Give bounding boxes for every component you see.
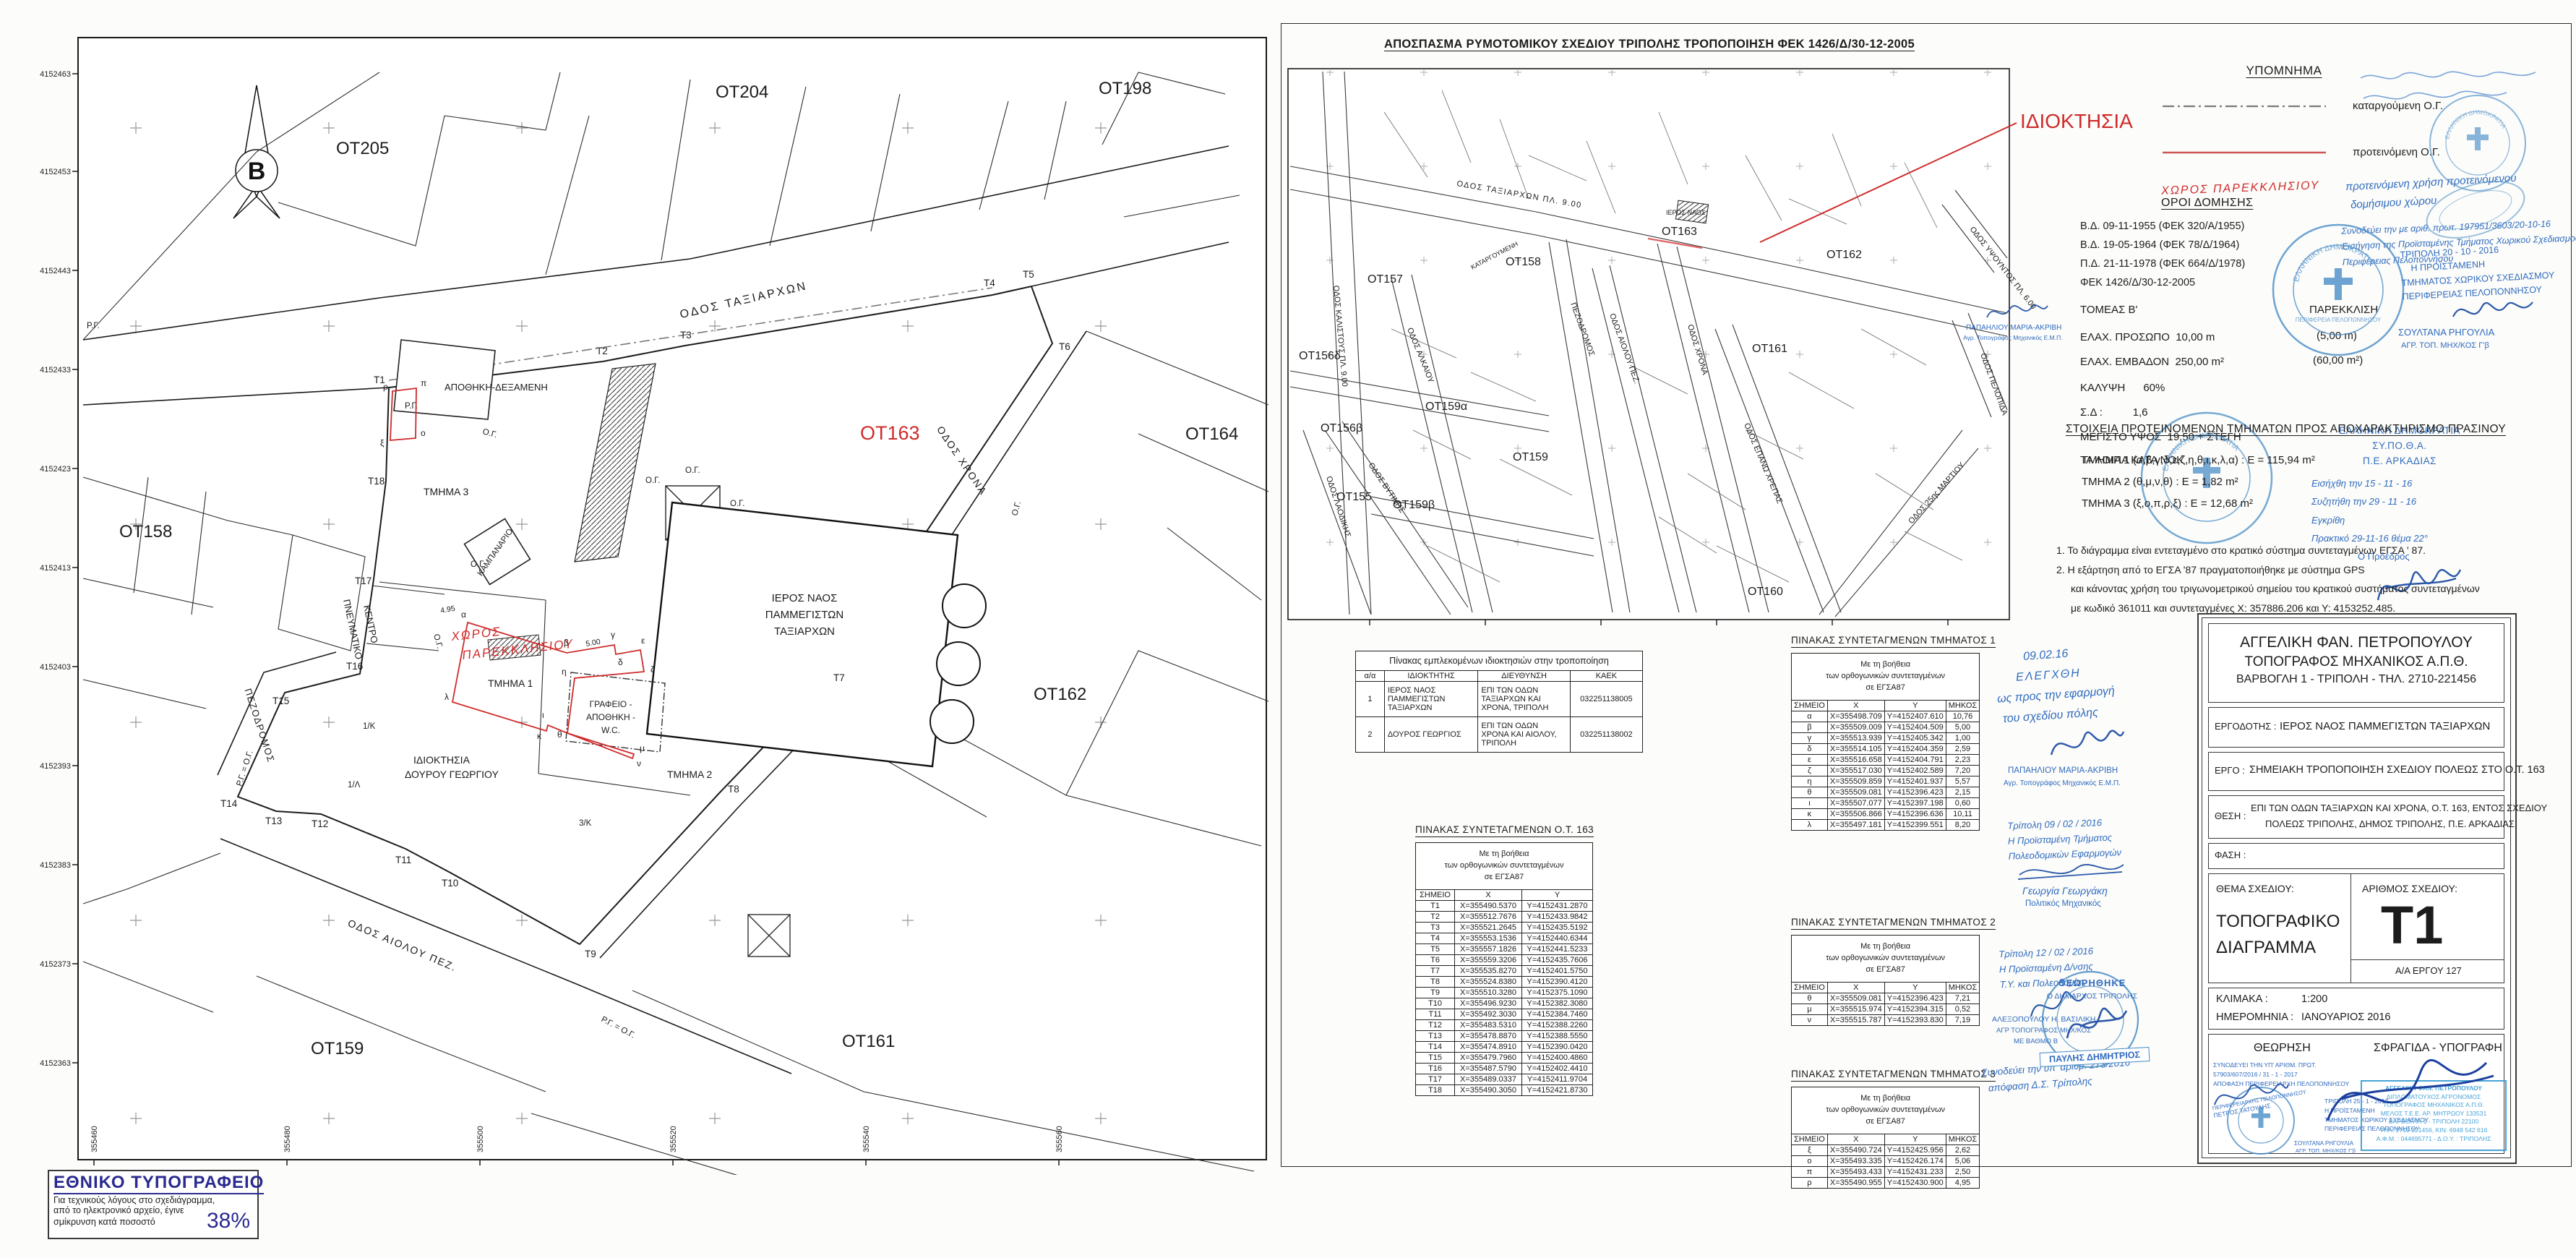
table-row: Τ12 Χ=355483.5310 Υ=4152388.2260: [1416, 1019, 1593, 1030]
tb-phase-row: ΦΑΣΗ :: [2208, 843, 2504, 869]
svg-text:4152383: 4152383: [40, 861, 71, 870]
cell-y: Υ=4152375.1090: [1521, 987, 1592, 998]
date-label: ΗΜΕΡΟΜΗΝΙΑ :: [2216, 1011, 2293, 1023]
cell-x: Χ=355509.081: [1827, 993, 1884, 1004]
svg-text:4152363: 4152363: [40, 1059, 71, 1068]
cell-y: Υ=4152405.342: [1884, 732, 1946, 743]
svg-text:4152403: 4152403: [40, 663, 71, 672]
table-row: Τ4 Χ=355553.1536 Υ=4152440.6344: [1416, 933, 1593, 943]
cell-point: α: [1792, 711, 1828, 722]
cell-point: ζ: [1792, 765, 1828, 776]
svg-text:Τ3: Τ3: [680, 330, 692, 341]
cell-x: Χ=355490.5370: [1455, 900, 1522, 911]
region-stamp-title: ΑΓΡ. ΤΟΠ. ΜΗΧ/ΚΟΣ Γ'β: [2401, 341, 2489, 350]
legend-abolished-line: [2161, 103, 2327, 110]
cell-y: Υ=4152390.4120: [1521, 976, 1592, 987]
cell-point: β: [1792, 722, 1828, 732]
table-row: Τ18 Χ=355490.3050 Υ=4152421.8730: [1416, 1084, 1593, 1095]
svg-text:Τ18: Τ18: [368, 476, 385, 487]
cell-y: Υ=4152435.7606: [1521, 954, 1592, 965]
svg-text:π: π: [421, 378, 426, 388]
review-title2: ΑΓΡ. ΤΟΠ. ΜΗΧ/ΚΟΣ Γ'β: [2296, 1147, 2356, 1154]
cell-y: Υ=4152396.423: [1884, 787, 1946, 797]
cell-address: ΕΠΙ ΤΩΝ ΟΔΩΝ ΤΑΞΙΑΡΧΩΝ ΚΑΙ ΧΡΟΝΑ, ΤΡΙΠΟΛ…: [1478, 682, 1570, 717]
cell-len: 10,76: [1946, 711, 1979, 722]
cell-x: Χ=355496.9230: [1455, 998, 1522, 1009]
svg-text:Τ10: Τ10: [442, 878, 458, 889]
cell-x: Χ=355474.8910: [1455, 1041, 1522, 1052]
table-row: γ Χ=355513.939 Υ=4152405.342 1,00: [1792, 732, 1980, 743]
svg-text:Ο.Γ.: Ο.Γ.: [645, 476, 660, 485]
cell-point: κ: [1792, 808, 1828, 819]
svg-text:α: α: [461, 609, 466, 620]
col-header: ΣΗΜΕΙΟ: [1792, 982, 1828, 993]
cell-len: 7,21: [1946, 993, 1979, 1004]
sypotha-rows: Εισήχθη την 15 - 11 - 16 Συζητήθη την 29…: [2311, 474, 2428, 547]
svg-text:ΟΤ204: ΟΤ204: [716, 82, 768, 102]
cell-point: ρ: [1792, 1177, 1828, 1188]
review-header: ΘΕΩΡΗΣΗ: [2254, 1042, 2311, 1055]
engineer-name: ΑΓΓΕΛΙΚΗ ΦΑΝ. ΠΕΤΡΟΠΟΥΛΟΥ: [2209, 634, 2504, 651]
legend-title: ΥΠΟΜΝΗΜΑ: [2215, 64, 2353, 78]
cell-len: 1,00: [1946, 732, 1979, 743]
svg-text:4152423: 4152423: [40, 465, 71, 474]
svg-text:ΟΤ157: ΟΤ157: [1368, 273, 1403, 286]
cell-point: μ: [1792, 1004, 1828, 1014]
table-row: Τ5 Χ=355557.1826 Υ=4152441.5233: [1416, 943, 1593, 954]
cell-point: Τ9: [1416, 987, 1455, 998]
legend-proposed-line: [2161, 149, 2327, 156]
cell-x: Χ=355515.787: [1827, 1014, 1884, 1025]
svg-text:ΟΤ198: ΟΤ198: [1099, 79, 1151, 98]
svg-text:ΟΤ159α: ΟΤ159α: [1425, 401, 1467, 413]
ownership-label: ΙΔΙΟΚΤΗΣΙΑ: [2020, 110, 2133, 132]
main-map: 4152463 4152453 4152443 4152433 4152423 …: [40, 29, 1272, 1175]
review-name2: ΣΟΥΛΤΑΝΑ ΡΗΓΟΥΛΙΑ: [2294, 1140, 2353, 1147]
svg-text:Τ4: Τ4: [984, 278, 995, 288]
engineer-address: ΒΑΡΒΟΓΛΗ 1 - ΤΡΙΠΟΛΗ - ΤΗΛ. 2710-221456: [2209, 673, 2504, 686]
area-label: ΕΛΑΧ. ΕΜΒΑΔΟΝ: [2080, 356, 2169, 368]
cell-point: ν: [1792, 1014, 1828, 1025]
table-row: η Χ=355509.859 Υ=4152401.937 5,57: [1792, 776, 1980, 787]
svg-text:4152393: 4152393: [40, 762, 71, 771]
svg-text:4152413: 4152413: [40, 564, 71, 573]
col-header: ΣΗΜΕΙΟ: [1416, 889, 1455, 900]
svg-text:ΟΤ156δ: ΟΤ156δ: [1299, 350, 1341, 362]
svg-text:ΟΤ158: ΟΤ158: [119, 522, 172, 542]
cell-x: Χ=355492.3030: [1455, 1009, 1522, 1019]
table-row: ξ Χ=355490.724 Υ=4152425.956 2,62: [1792, 1144, 1980, 1155]
signature-scribble: [2210, 1077, 2290, 1113]
svg-text:ΤΜΗΜΑ 3: ΤΜΗΜΑ 3: [424, 486, 468, 497]
cell-y: Υ=4152396.423: [1884, 993, 1946, 1004]
cell-point: Τ2: [1416, 911, 1455, 922]
theme-line1: ΤΟΠΟΓΡΑΦΙΚΟ: [2216, 912, 2340, 932]
cell-len: 7,20: [1946, 765, 1979, 776]
cell-y: Υ=4152431.2870: [1521, 900, 1592, 911]
cell-x: Χ=355479.7960: [1455, 1052, 1522, 1063]
checker-name: ΠΑΠΑΗΛΙΟΥ ΜΑΡΙΑ-ΑΚΡΙΒΗ: [2008, 766, 2118, 775]
svg-text:1/Κ: 1/Κ: [363, 722, 376, 731]
cell-x: Χ=355483.5310: [1455, 1019, 1522, 1030]
decree-line: Π.Δ. 21-11-1978 (ΦΕΚ 664/Δ/1978): [2080, 254, 2245, 273]
approval-1-title: Πολιτικός Μηχανικός: [2025, 899, 2101, 908]
table-row: Τ17 Χ=355489.0337 Υ=4152411.9704: [1416, 1074, 1593, 1084]
cell-len: 5,00: [1946, 722, 1979, 732]
cell-x: Χ=355478.8870: [1455, 1030, 1522, 1041]
cell-y: Υ=4152397.198: [1884, 797, 1946, 808]
crossed-structure-2: [748, 915, 790, 957]
svg-text:ΟΤ161: ΟΤ161: [1752, 343, 1787, 355]
col-header: ΔΙΕΥΘΥΝΣΗ: [1478, 671, 1570, 682]
national-print-box: ΕΘΝΙΚΟ ΤΥΠΟΓΡΑΦΕΙΟ Για τεχνικούς λόγους …: [48, 1170, 259, 1239]
cell-point: Τ11: [1416, 1009, 1455, 1019]
owners-title: Πίνακας εμπλεκομένων ιδιοκτησιών στην τρ…: [1356, 651, 1643, 671]
sd-label: Σ.Δ :: [2080, 406, 2103, 419]
table-row: ο Χ=355493.335 Υ=4152426.174 5,06: [1792, 1155, 1980, 1166]
table-row: ε Χ=355516.658 Υ=4152404.791 2,23: [1792, 754, 1980, 765]
cell-point: ε: [1792, 754, 1828, 765]
table-row: Τ3 Χ=355521.2645 Υ=4152435.5192: [1416, 922, 1593, 933]
svg-text:355500: 355500: [476, 1126, 485, 1152]
cell-x: Χ=355509.009: [1827, 722, 1884, 732]
col-header: ΙΔΙΟΚΤΗΤΗΣ: [1384, 671, 1478, 682]
cell-y: Υ=4152435.5192: [1521, 922, 1592, 933]
cell-point: Τ17: [1416, 1074, 1455, 1084]
svg-text:ΟΤ164: ΟΤ164: [1185, 424, 1238, 444]
col-header: α/α: [1356, 671, 1385, 682]
signature-scribble: [2450, 295, 2537, 328]
svg-text:η: η: [562, 667, 567, 677]
cell-x: Χ=355512.7676: [1455, 911, 1522, 922]
cell-owner: ΔΟΥΡΟΣ ΓΕΩΡΓΙΟΣ: [1384, 717, 1478, 753]
svg-text:Τ16: Τ16: [346, 661, 363, 672]
svg-text:ΟΤ160: ΟΤ160: [1748, 586, 1783, 598]
approval-1-name: Γεωργία Γεωργάκη: [2022, 885, 2108, 897]
decree-line: Β.Δ. 09-11-1955 (ΦΕΚ 320/Α/1955): [2080, 217, 2245, 236]
cell-y: Υ=4152390.0420: [1521, 1041, 1592, 1052]
svg-text:Τ2: Τ2: [596, 346, 608, 356]
cell-y: Υ=4152404.359: [1884, 743, 1946, 754]
theme-label: ΘΕΜΑ ΣΧΕΔΙΟΥ:: [2216, 883, 2294, 894]
svg-text:ΟΤ162: ΟΤ162: [1826, 249, 1862, 261]
col-header: Χ: [1827, 700, 1884, 711]
cell-y: Υ=4152402.589: [1884, 765, 1946, 776]
svg-text:ΟΤ158: ΟΤ158: [1506, 256, 1541, 268]
table-row: Τ13 Χ=355478.8870 Υ=4152388.5550: [1416, 1030, 1593, 1041]
cell-point: Τ10: [1416, 998, 1455, 1009]
cell-len: 2,15: [1946, 787, 1979, 797]
svg-text:ο: ο: [421, 428, 426, 438]
svg-text:Τ5: Τ5: [1023, 269, 1034, 280]
table-row: Τ10 Χ=355496.9230 Υ=4152382.3080: [1416, 998, 1593, 1009]
decree-line: Β.Δ. 19-05-1964 (ΦΕΚ 78/Δ/1964): [2080, 236, 2245, 254]
section-item: ΤΜΗΜΑ 1 (α,β,γ,δ,ε,ζ,η,θ,ι,κ,λ,α) : Ε = …: [2082, 450, 2315, 471]
table-row: Τ9 Χ=355510.3280 Υ=4152375.1090: [1416, 987, 1593, 998]
national-print-l1: Για τεχνικούς λόγους στο σχεδιάγραμμα,: [53, 1195, 253, 1205]
cell-point: Τ12: [1416, 1019, 1455, 1030]
svg-text:355480: 355480: [283, 1126, 292, 1152]
cell-len: 8,20: [1946, 819, 1979, 830]
svg-text:ΓΡΑΦΕΙΟ -: ΓΡΑΦΕΙΟ -: [590, 699, 632, 709]
cell-owner: ΙΕΡΟΣ ΝΑΟΣ ΠΑΜΜΕΓΙΣΤΩΝ ΤΑΞΙΑΡΧΩΝ: [1384, 682, 1478, 717]
table-row: Τ11 Χ=355492.3030 Υ=4152384.7460: [1416, 1009, 1593, 1019]
col-header: ΜΗΚΟΣ: [1946, 1134, 1979, 1144]
svg-text:4152373: 4152373: [40, 960, 71, 969]
svg-text:1/Λ: 1/Λ: [348, 781, 361, 790]
area-value: 250,00 m²: [2175, 356, 2224, 368]
corner-handwriting-scribble: [2358, 67, 2538, 117]
cell-len: 2,59: [1946, 743, 1979, 754]
svg-text:ΙΕΡΟΣ ΝΑΟΣ: ΙΕΡΟΣ ΝΑΟΣ: [772, 592, 838, 604]
cell-y: Υ=4152384.7460: [1521, 1009, 1592, 1019]
cell-x: Χ=355514.105: [1827, 743, 1884, 754]
signature-scribble: [2017, 859, 2125, 885]
table-title: ΠΙΝΑΚΑΣ ΣΥΝΤΕΤΑΓΜΕΝΩΝ Ο.Τ. 163: [1415, 824, 1593, 835]
col-header: ΣΗΜΕΙΟ: [1792, 700, 1828, 711]
cell-x: Χ=355490.724: [1827, 1144, 1884, 1155]
sections-title: ΣΤΟΙΧΕΙΑ ΠΡΟΤΕΙΝΟΜΕΝΩΝ ΤΜΗΜΑΤΩΝ ΠΡΟΣ ΑΠΟ…: [2066, 423, 2506, 436]
table-row: Τ16 Χ=355487.5790 Υ=4152402.4410: [1416, 1063, 1593, 1074]
national-print-percent: 38%: [207, 1209, 250, 1233]
cell-x: Χ=355535.8270: [1455, 965, 1522, 976]
table-row: Τ8 Χ=355524.8380 Υ=4152390.4120: [1416, 976, 1593, 987]
cell-point: Τ8: [1416, 976, 1455, 987]
section-item: ΤΜΗΜΑ 3 (ξ,ο,π,ρ,ξ) : Ε = 12,68 m²: [2082, 493, 2315, 515]
stamp-line: Συζητήθη την 29 - 11 - 16: [2311, 492, 2428, 510]
table-row: β Χ=355509.009 Υ=4152404.509 5,00: [1792, 722, 1980, 732]
cell-y: Υ=4152404.791: [1884, 754, 1946, 765]
svg-text:4152443: 4152443: [40, 267, 71, 275]
national-print-l3: σμίκρυνση κατά ποσοστό: [53, 1217, 155, 1227]
cell-x: Χ=355490.3050: [1455, 1084, 1522, 1095]
cell-y: Υ=4152400.4860: [1521, 1052, 1592, 1063]
table-row: δ Χ=355514.105 Υ=4152404.359 2,59: [1792, 743, 1980, 754]
cell-y: Υ=4152401.937: [1884, 776, 1946, 787]
cell-kaek: 032251138002: [1570, 717, 1642, 753]
cell-x: Χ=355513.939: [1827, 732, 1884, 743]
phase-label: ΦΑΣΗ :: [2215, 850, 2246, 860]
employer-value: ΙΕΡΟΣ ΝΑΟΣ ΠΑΜΜΕΓΙΣΤΩΝ ΤΑΞΙΑΡΧΩΝ: [2280, 720, 2490, 732]
cell-kaek: 032251138005: [1570, 682, 1642, 717]
svg-text:Τ12: Τ12: [312, 818, 328, 829]
svg-text:Ρ.Γ.: Ρ.Γ.: [405, 402, 418, 411]
table-row: 1 ΙΕΡΟΣ ΝΑΟΣ ΠΑΜΜΕΓΙΣΤΩΝ ΤΑΞΙΑΡΧΩΝ ΕΠΙ Τ…: [1356, 682, 1643, 717]
cell-len: 2,62: [1946, 1144, 1979, 1155]
cell-len: 2,50: [1946, 1166, 1979, 1177]
cell-x: Χ=355497.181: [1827, 819, 1884, 830]
tb-location-row: ΘΕΣΗ : ΕΠΙ ΤΩΝ ΟΔΩΝ ΤΑΞΙΑΡΧΩΝ ΚΑΙ ΧΡΟΝΑ,…: [2208, 795, 2504, 839]
checker-stamp-name: ΠΑΠΑΗΛΙΟΥ ΜΑΡΙΑ-ΑΚΡΙΒΗ: [1966, 324, 2061, 332]
svg-text:ε: ε: [641, 636, 645, 646]
svg-text:ΕΛΛΗΝΙΚΗ ΔΗΜΟΚΡΑΤΙΑ: ΕΛΛΗΝΙΚΗ ΔΗΜΟΚΡΑΤΙΑ: [2292, 243, 2376, 283]
coord-table-tmima1: ΠΙΝΑΚΑΣ ΣΥΝΤΕΤΑΓΜΕΝΩΝ ΤΜΗΜΑΤΟΣ 1 Με τη β…: [1791, 635, 1973, 831]
svg-text:Ο.Γ.: Ο.Γ.: [471, 560, 485, 569]
church-apse: [930, 700, 974, 743]
region-stamp-name: ΣΟΥΛΤΑΝΑ ΡΗΓΟΥΛΙΑ: [2398, 327, 2494, 338]
location-line1: ΕΠΙ ΤΩΝ ΟΔΩΝ ΤΑΞΙΑΡΧΩΝ ΚΑΙ ΧΡΟΝΑ, Ο.Τ. 1…: [2251, 803, 2547, 813]
col-header: Χ: [1455, 889, 1522, 900]
cell-y: Υ=4152399.551: [1884, 819, 1946, 830]
svg-text:355540: 355540: [862, 1126, 871, 1152]
table-row: Τ2 Χ=355512.7676 Υ=4152433.9842: [1416, 911, 1593, 922]
cell-x: Χ=355498.709: [1827, 711, 1884, 722]
cell-point: Τ13: [1416, 1030, 1455, 1041]
region-stamp: ΕΛΛΗΝΙΚΗ ΔΗΜΟΚΡΑΤΙΑ ΠΕΡΙΦΕΡΕΙΑ ΠΕΛΟΠΟΝΝΗ…: [2270, 221, 2407, 359]
cell-point: λ: [1792, 819, 1828, 830]
cell-y: Υ=4152402.4410: [1521, 1063, 1592, 1074]
cell-point: Τ6: [1416, 954, 1455, 965]
cell-aa: 2: [1356, 717, 1385, 753]
svg-text:ΙΕΡΟΣ ΝΑΟΣ: ΙΕΡΟΣ ΝΑΟΣ: [1666, 209, 1706, 216]
tb-theme-row: ΘΕΜΑ ΣΧΕΔΙΟΥ: ΤΟΠΟΓΡΑΦΙΚΟ ΔΙΑΓΡΑΜΜΑ ΑΡΙΘ…: [2208, 873, 2504, 983]
cell-y: Υ=4152393.830: [1884, 1014, 1946, 1025]
svg-text:ΟΤ159: ΟΤ159: [1513, 451, 1548, 463]
decree-line: ΦΕΚ 1426/Δ/30-12-2005: [2080, 273, 2245, 292]
cell-len: 4,95: [1946, 1177, 1979, 1188]
svg-text:Τ14: Τ14: [220, 798, 238, 809]
cell-point: Τ18: [1416, 1084, 1455, 1095]
stamp-line: Α.Φ.Μ. : 044695771 - Δ.Ο.Υ. : ΤΡΙΠΟΛΗΣ: [2362, 1135, 2505, 1144]
tb-scale-row: ΚΛΙΜΑΚΑ : 1:200 ΗΜΕΡΟΜΗΝΙΑ : ΙΑΝΟΥΑΡΙΟΣ …: [2208, 988, 2504, 1030]
cell-y: Υ=4152430.900: [1884, 1177, 1946, 1188]
col-header: ΚΑΕΚ: [1570, 671, 1642, 682]
table-subtitle: Με τη βοήθειατων ορθογωνικών συντεταγμέν…: [1792, 654, 1980, 701]
table-row: Τ14 Χ=355474.8910 Υ=4152390.0420: [1416, 1041, 1593, 1052]
svg-text:Ο.Γ.: Ο.Γ.: [730, 500, 744, 508]
coverage-value: 60%: [2143, 382, 2165, 394]
cell-y: Υ=4152404.509: [1884, 722, 1946, 732]
cell-aa: 1: [1356, 682, 1385, 717]
stamp-line: Εγκρίθη: [2311, 511, 2428, 529]
stamp-line: Π.Ε. ΑΡΚΑΔΙΑΣ: [2313, 454, 2486, 469]
col-header: ΜΗΚΟΣ: [1946, 700, 1979, 711]
table-row: Τ6 Χ=355559.3206 Υ=4152435.7606: [1416, 954, 1593, 965]
note-line: 2. Η εξάρτηση από το ΕΓΣΑ '87 πραγματοπο…: [2056, 560, 2480, 580]
svg-text:Τ13: Τ13: [265, 816, 282, 826]
cell-y: Υ=4152426.174: [1884, 1155, 1946, 1166]
col-header: Υ: [1521, 889, 1592, 900]
table-title: ΠΙΝΑΚΑΣ ΣΥΝΤΕΤΑΓΜΕΝΩΝ ΤΜΗΜΑΤΟΣ 3: [1791, 1069, 1973, 1079]
svg-text:ρ: ρ: [383, 382, 388, 392]
cell-point: η: [1792, 776, 1828, 787]
svg-text:ι: ι: [542, 710, 544, 720]
checker-stamp-title: Αγρ. Τοπογράφος Μηχανικός Ε.Μ.Π.: [1963, 334, 2063, 341]
approval-1: Τρίπολη 09 / 02 / 2016 Η Προϊσταμένη Τμή…: [2007, 815, 2121, 864]
terms-sector: ΤΟΜΕΑΣ Β': [2080, 304, 2137, 316]
svg-text:4152463: 4152463: [40, 70, 71, 79]
cell-y: Υ=4152411.9704: [1521, 1074, 1592, 1084]
tb-employer-row: ΕΡΓΟΔΟΤΗΣ : ΙΕΡΟΣ ΝΑΟΣ ΠΑΜΜΕΓΙΣΤΩΝ ΤΑΞΙΑ…: [2208, 707, 2504, 748]
table-row: κ Χ=355506.866 Υ=4152396.636 10,11: [1792, 808, 1980, 819]
cell-x: Χ=355553.1536: [1455, 933, 1522, 943]
cell-y: Υ=4152431.233: [1884, 1166, 1946, 1177]
table-row: θ Χ=355509.081 Υ=4152396.423 7,21: [1792, 993, 1980, 1004]
cell-x: Χ=355506.866: [1827, 808, 1884, 819]
svg-text:ΤΑΞΙΑΡΧΩΝ: ΤΑΞΙΑΡΧΩΝ: [774, 625, 835, 638]
project-value: ΣΗΜΕΙΑΚΗ ΤΡΟΠΟΠΟΙΗΣΗ ΣΧΕΔΙΟΥ ΠΟΛΕΩΣ ΣΤΟ …: [2249, 764, 2545, 776]
svg-text:355520: 355520: [669, 1126, 678, 1152]
svg-text:ΑΠΟΘΗΚΗ -: ΑΠΟΘΗΚΗ -: [586, 712, 635, 722]
cell-len: 5,57: [1946, 776, 1979, 787]
cell-point: Τ1: [1416, 900, 1455, 911]
cell-y: Υ=4152396.636: [1884, 808, 1946, 819]
svg-text:ΟΤ161: ΟΤ161: [842, 1032, 895, 1051]
svg-text:W.C.: W.C.: [601, 725, 620, 735]
svg-text:ΤΜΗΜΑ 1: ΤΜΗΜΑ 1: [488, 677, 533, 689]
svg-text:ξ: ξ: [380, 438, 385, 448]
cell-point: δ: [1792, 743, 1828, 754]
cell-x: Χ=355509.859: [1827, 776, 1884, 787]
svg-text:ΟΤ205: ΟΤ205: [336, 139, 389, 158]
cell-y: Υ=4152425.956: [1884, 1144, 1946, 1155]
signature-scribble: [2058, 998, 2131, 1048]
extract-ticks: [1370, 620, 1948, 625]
signature-scribble: [2313, 1041, 2501, 1135]
table-row: 2 ΔΟΥΡΟΣ ΓΕΩΡΓΙΟΣ ΕΠΙ ΤΩΝ ΟΔΩΝ ΧΡΟΝΑ ΚΑΙ…: [1356, 717, 1643, 753]
front-value: 10,00 m: [2176, 331, 2215, 343]
date-value: ΙΑΝΟΥΑΡΙΟΣ 2016: [2301, 1011, 2390, 1023]
svg-text:355460: 355460: [90, 1126, 99, 1152]
svg-text:ΟΤ159: ΟΤ159: [311, 1039, 364, 1058]
coord-table-tmima3: ΠΙΝΑΚΑΣ ΣΥΝΤΕΤΑΓΜΕΝΩΝ ΤΜΗΜΑΤΟΣ 3 Με τη β…: [1791, 1069, 1973, 1189]
cell-len: 10,11: [1946, 808, 1979, 819]
cell-x: Χ=355490.955: [1827, 1177, 1884, 1188]
project-label: ΕΡΓΟ :: [2215, 765, 2245, 776]
col-header: Υ: [1884, 1134, 1946, 1144]
svg-text:ζ: ζ: [651, 664, 655, 675]
block-ot163-label: ΟΤ163: [860, 422, 920, 444]
signature-scribble: [1984, 300, 2049, 325]
svg-text:3/Κ: 3/Κ: [579, 819, 592, 828]
svg-text:Τ11: Τ11: [395, 855, 411, 865]
stamp-line: Εισήχθη την 15 - 11 - 16: [2311, 474, 2428, 492]
north-label: B: [248, 158, 266, 185]
table-row: Τ7 Χ=355535.8270 Υ=4152401.5750: [1416, 965, 1593, 976]
svg-text:ΟΤ162: ΟΤ162: [1034, 685, 1086, 704]
col-header: ΜΗΚΟΣ: [1946, 982, 1979, 993]
greek-cross-icon: [2324, 268, 2353, 300]
note-line: 1. Το διάγραμμα είναι εντεταγμένο στο κρ…: [2056, 541, 2480, 560]
col-header: Χ: [1827, 982, 1884, 993]
table-row: α Χ=355498.709 Υ=4152407.610 10,76: [1792, 711, 1980, 722]
note-line: και κάνοντας χρήση του τριγωνομετρικού σ…: [2071, 579, 2480, 599]
cell-x: Χ=355509.081: [1827, 787, 1884, 797]
svg-text:Ρ.Γ.: Ρ.Γ.: [87, 322, 100, 330]
sections-items: ΤΜΗΜΑ 1 (α,β,γ,δ,ε,ζ,η,θ,ι,κ,λ,α) : Ε = …: [2082, 450, 2315, 515]
cell-y: Υ=4152441.5233: [1521, 943, 1592, 954]
table-row: μ Χ=355515.974 Υ=4152394.315 0,52: [1792, 1004, 1980, 1014]
terms-decrees: Β.Δ. 09-11-1955 (ΦΕΚ 320/Α/1955) Β.Δ. 19…: [2080, 217, 2245, 292]
table-subtitle: Με τη βοήθειατων ορθογωνικών συντεταγμέν…: [1416, 843, 1593, 890]
svg-text:δ: δ: [618, 657, 623, 667]
terms-title: ΟΡΟΙ ΔΟΜΗΣΗΣ: [2161, 197, 2253, 210]
cell-x: Χ=355516.658: [1827, 754, 1884, 765]
cell-x: Χ=355524.8380: [1455, 976, 1522, 987]
location-line2: ΠΟΛΕΩΣ ΤΡΙΠΟΛΗΣ, ΔΗΜΟΣ ΤΡΙΠΟΛΗΣ, Π.Ε. ΑΡ…: [2265, 818, 2515, 829]
svg-text:4152453: 4152453: [40, 168, 71, 176]
svg-text:ΔΟΥΡΟΥ ΓΕΩΡΓΙΟΥ: ΔΟΥΡΟΥ ΓΕΩΡΓΙΟΥ: [405, 769, 499, 780]
cell-len: 0,52: [1946, 1004, 1979, 1014]
col-header: Υ: [1884, 700, 1946, 711]
cell-point: ο: [1792, 1155, 1828, 1166]
coverage-label: ΚΑΛΥΨΗ: [2080, 382, 2125, 394]
svg-text:Τ8: Τ8: [728, 784, 739, 795]
employer-label: ΕΡΓΟΔΟΤΗΣ :: [2215, 721, 2276, 732]
cell-point: Τ4: [1416, 933, 1455, 943]
grid-labels-y: 4152463 4152453 4152443 4152433 4152423 …: [40, 70, 71, 1068]
cell-x: Χ=355517.030: [1827, 765, 1884, 776]
